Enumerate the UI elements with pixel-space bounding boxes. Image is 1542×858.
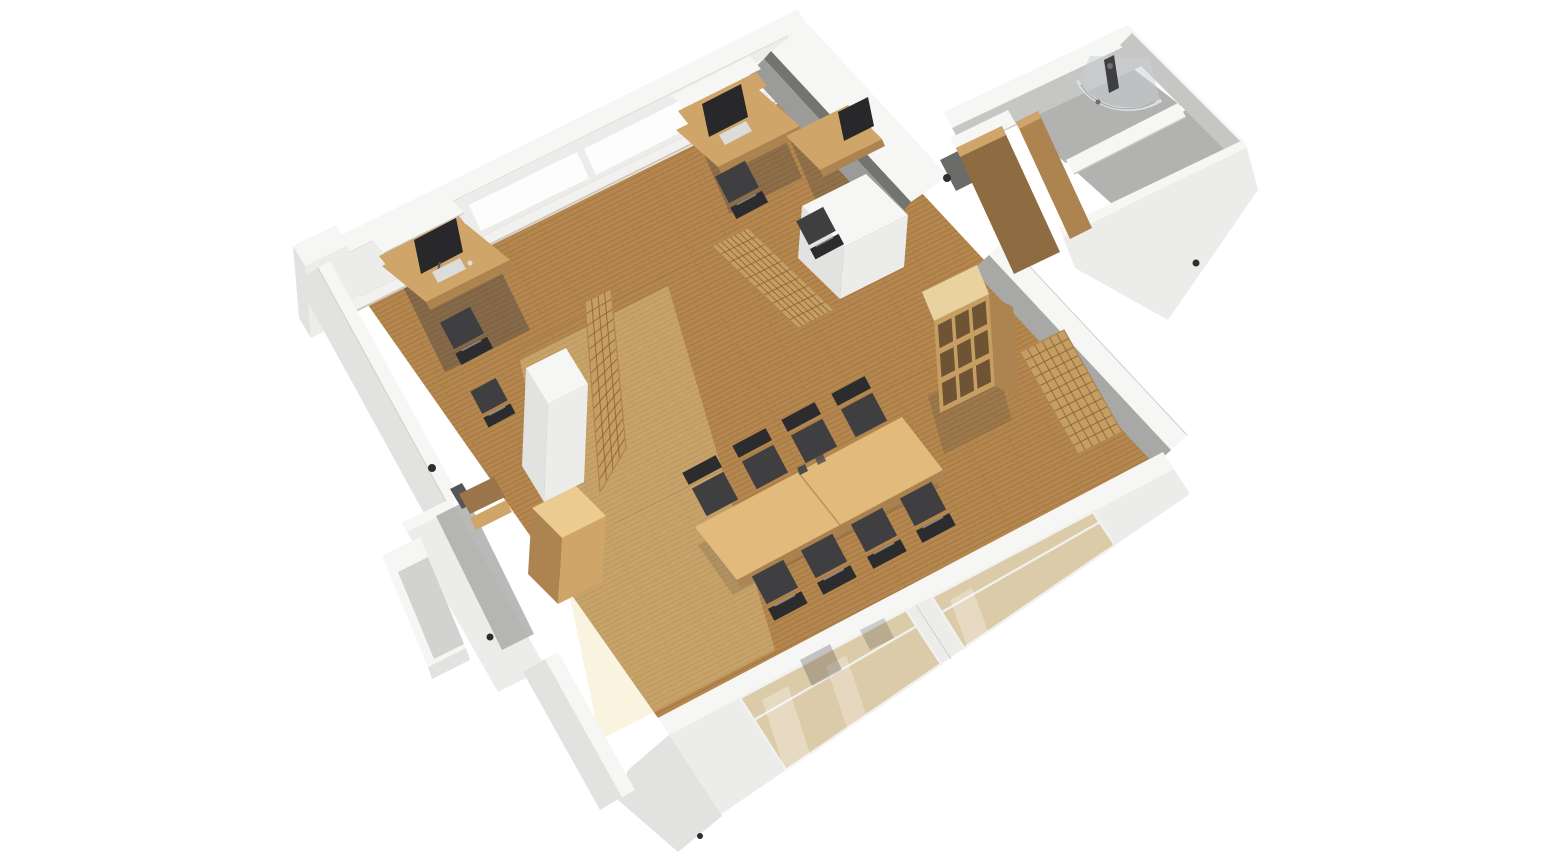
office-3d-floorplan-render [0,0,1542,858]
screen-a-cabinet [522,348,588,502]
building-cutaway [293,9,1258,852]
scene-canvas [0,0,1542,858]
